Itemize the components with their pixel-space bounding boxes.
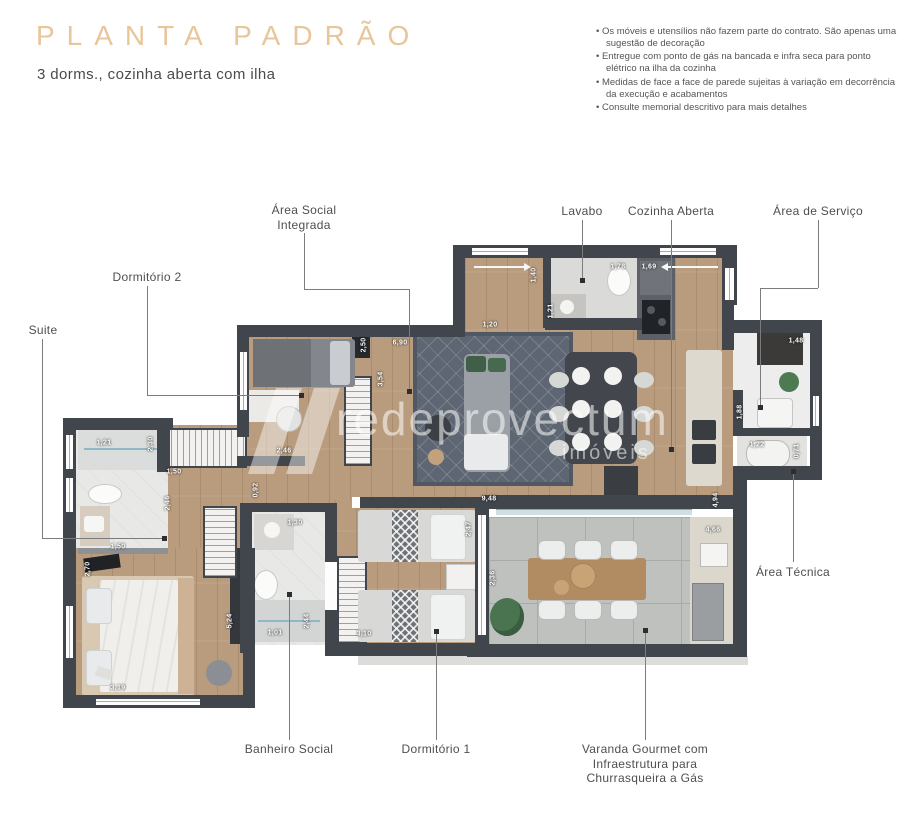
dimension-label: 1,21 [97, 440, 112, 447]
dorm1-nightstand [446, 564, 478, 590]
suite-basin [84, 516, 104, 532]
door-opening [325, 562, 337, 610]
leader-line [582, 220, 583, 279]
dining-chair [549, 372, 569, 388]
leader-dot [669, 447, 674, 452]
leader-dot [287, 592, 292, 597]
dimension-label: 1,88 [737, 405, 744, 420]
room-label-varanda-gourmet: Varanda Gourmet com Infraestrutura para … [578, 742, 712, 786]
varanda-chair [574, 600, 602, 620]
room-label-area-tecnica: Área Técnica [743, 565, 843, 580]
dimension-label: 1,78 [611, 264, 626, 271]
dorm1-pillow [430, 514, 466, 560]
leader-line [645, 633, 646, 740]
varanda-chair [610, 600, 638, 620]
dimension-label: 1,01 [268, 630, 283, 637]
window-marker [725, 268, 734, 300]
dimension-label: 1,22 [750, 442, 765, 449]
dimension-label: 4,94 [713, 493, 720, 508]
dimension-label: 0,71 [794, 444, 801, 459]
plate [604, 367, 622, 385]
varanda-chair [610, 540, 638, 560]
wall [325, 503, 337, 565]
room-label-area-de-servico: Área de Serviço [763, 204, 873, 219]
wall [733, 320, 822, 333]
dimension-label: 1,50 [167, 469, 182, 476]
lavabo-basin [560, 300, 574, 314]
room-label-dormitorio-2: Dormitório 2 [87, 270, 207, 285]
wall [733, 428, 813, 436]
floor-plan-page: PLANTA PADRÃO 3 dorms., cozinha aberta c… [0, 0, 906, 818]
dimension-label: 3,54 [378, 372, 385, 387]
wardrobe-suite-closet [163, 428, 247, 468]
lavabo-toilet [607, 266, 631, 296]
room-label-dormitorio-1: Dormitório 1 [386, 742, 486, 757]
sliding-glass-door [496, 509, 692, 515]
leader-line [147, 286, 148, 395]
balcony-slab [358, 656, 748, 665]
window-marker [96, 699, 200, 705]
leader-line [671, 220, 672, 447]
leader-line [42, 538, 162, 539]
dorm2-blanket [253, 339, 311, 387]
door-slide-line [474, 266, 524, 268]
leader-line [793, 474, 794, 562]
leader-line [42, 339, 43, 538]
dimension-label: 9,48 [482, 496, 497, 503]
dimension-label: 3,19 [111, 685, 126, 692]
varanda-chair [538, 600, 566, 620]
dimension-label: 1,48 [789, 338, 804, 345]
wall [240, 503, 252, 653]
leader-dot [407, 389, 412, 394]
laundry-tank [757, 398, 793, 428]
dimension-label: 1,30 [288, 520, 303, 527]
wall [545, 318, 642, 330]
leader-dot [162, 536, 167, 541]
varanda-plant [490, 598, 524, 636]
window-marker [240, 352, 247, 410]
wall [733, 466, 822, 480]
wall [453, 245, 465, 330]
wall [157, 418, 170, 472]
dining-chair [634, 372, 654, 388]
leader-dot [758, 405, 763, 410]
sofa-pillow-green [466, 356, 486, 372]
door-slide-line [668, 266, 718, 268]
wall [360, 497, 480, 508]
dimension-label: 6,90 [393, 340, 408, 347]
dimension-label: 4,66 [706, 527, 721, 534]
dimension-label: 2,70 [85, 562, 92, 577]
wall [237, 325, 465, 337]
room-label-cozinha-aberta: Cozinha Aberta [616, 204, 726, 219]
window-marker [472, 248, 528, 255]
leader-dot [580, 278, 585, 283]
dimension-label: 2,46 [277, 448, 292, 455]
leader-dot [643, 628, 648, 633]
island-sink [692, 420, 716, 440]
suite-toilet [88, 484, 122, 504]
churrasqueira-cabinet [692, 583, 724, 641]
dimension-label: 2,46 [165, 496, 172, 511]
cooktop [642, 300, 670, 334]
room-label-area-social-integrada: Área Social Integrada [258, 203, 350, 232]
wall [482, 495, 733, 509]
burner [658, 318, 666, 326]
watermark-brand: redeprovectum [336, 392, 669, 446]
floor-plan: redeprovectum imóveis 2,506,903,542,461,… [0, 0, 906, 818]
wardrobe-suite-closet-2 [203, 506, 237, 578]
leader-line [818, 220, 819, 288]
leader-line [304, 233, 305, 289]
dorm1-bed-2-runner [392, 590, 418, 642]
bs-basin [264, 522, 280, 538]
dorm2-pillow [330, 341, 350, 385]
leader-line [760, 288, 818, 289]
leader-dot [434, 629, 439, 634]
dimension-label: 1,50 [111, 544, 126, 551]
room-label-suite: Suite [13, 323, 73, 338]
dimension-label: 0,92 [253, 483, 260, 498]
leader-line [304, 289, 409, 290]
watermark-tagline: imóveis [562, 442, 651, 465]
burner [647, 306, 655, 314]
leader-dot [791, 469, 796, 474]
window-marker [66, 478, 73, 512]
room-label-lavabo: Lavabo [547, 204, 617, 219]
dimension-label: 2,36 [490, 571, 497, 586]
varanda-plate [570, 563, 596, 589]
kitchen-island [686, 350, 722, 486]
window-marker [478, 515, 486, 635]
wall [467, 644, 747, 657]
bs-toilet [254, 570, 278, 600]
wall [325, 643, 475, 656]
dimension-label: 1,21 [548, 304, 555, 319]
plant [779, 372, 799, 392]
varanda-plate-small [554, 580, 569, 595]
window-marker [660, 248, 716, 255]
dimension-label: 2,50 [361, 338, 368, 353]
varanda-chair [574, 540, 602, 560]
island-sink [692, 444, 716, 464]
room-label-banheiro-social: Banheiro Social [229, 742, 349, 757]
leader-line [760, 288, 761, 405]
dimension-label: 1,69 [642, 264, 657, 271]
varanda-chair [538, 540, 566, 560]
dimension-label: 5,24 [227, 614, 234, 629]
window-marker [66, 606, 73, 658]
door-opening [352, 497, 360, 508]
leader-dot [299, 393, 304, 398]
dimension-label: 2,44 [304, 614, 311, 629]
dimension-label: 3,10 [357, 631, 372, 638]
varanda-sink [700, 543, 728, 567]
wall [240, 503, 337, 512]
leader-line [289, 596, 290, 740]
window-marker [813, 396, 819, 426]
dimension-label: 2,47 [466, 522, 473, 537]
leader-line [147, 395, 299, 396]
suite-blanket-edge [178, 578, 194, 694]
sofa-pillow-green-2 [488, 358, 506, 372]
pouf [428, 449, 444, 465]
dimension-label: 1,20 [483, 322, 498, 329]
leader-line [436, 634, 437, 740]
suite-pouf [206, 660, 232, 686]
window-marker [66, 435, 73, 469]
dimension-label: 1,40 [531, 268, 538, 283]
door-slide-arrow [661, 263, 668, 271]
suite-pillow [86, 588, 112, 624]
leader-line [409, 289, 410, 389]
plate [572, 367, 590, 385]
dorm1-bed-runner [392, 510, 418, 562]
dimension-label: 2,30 [148, 437, 155, 452]
